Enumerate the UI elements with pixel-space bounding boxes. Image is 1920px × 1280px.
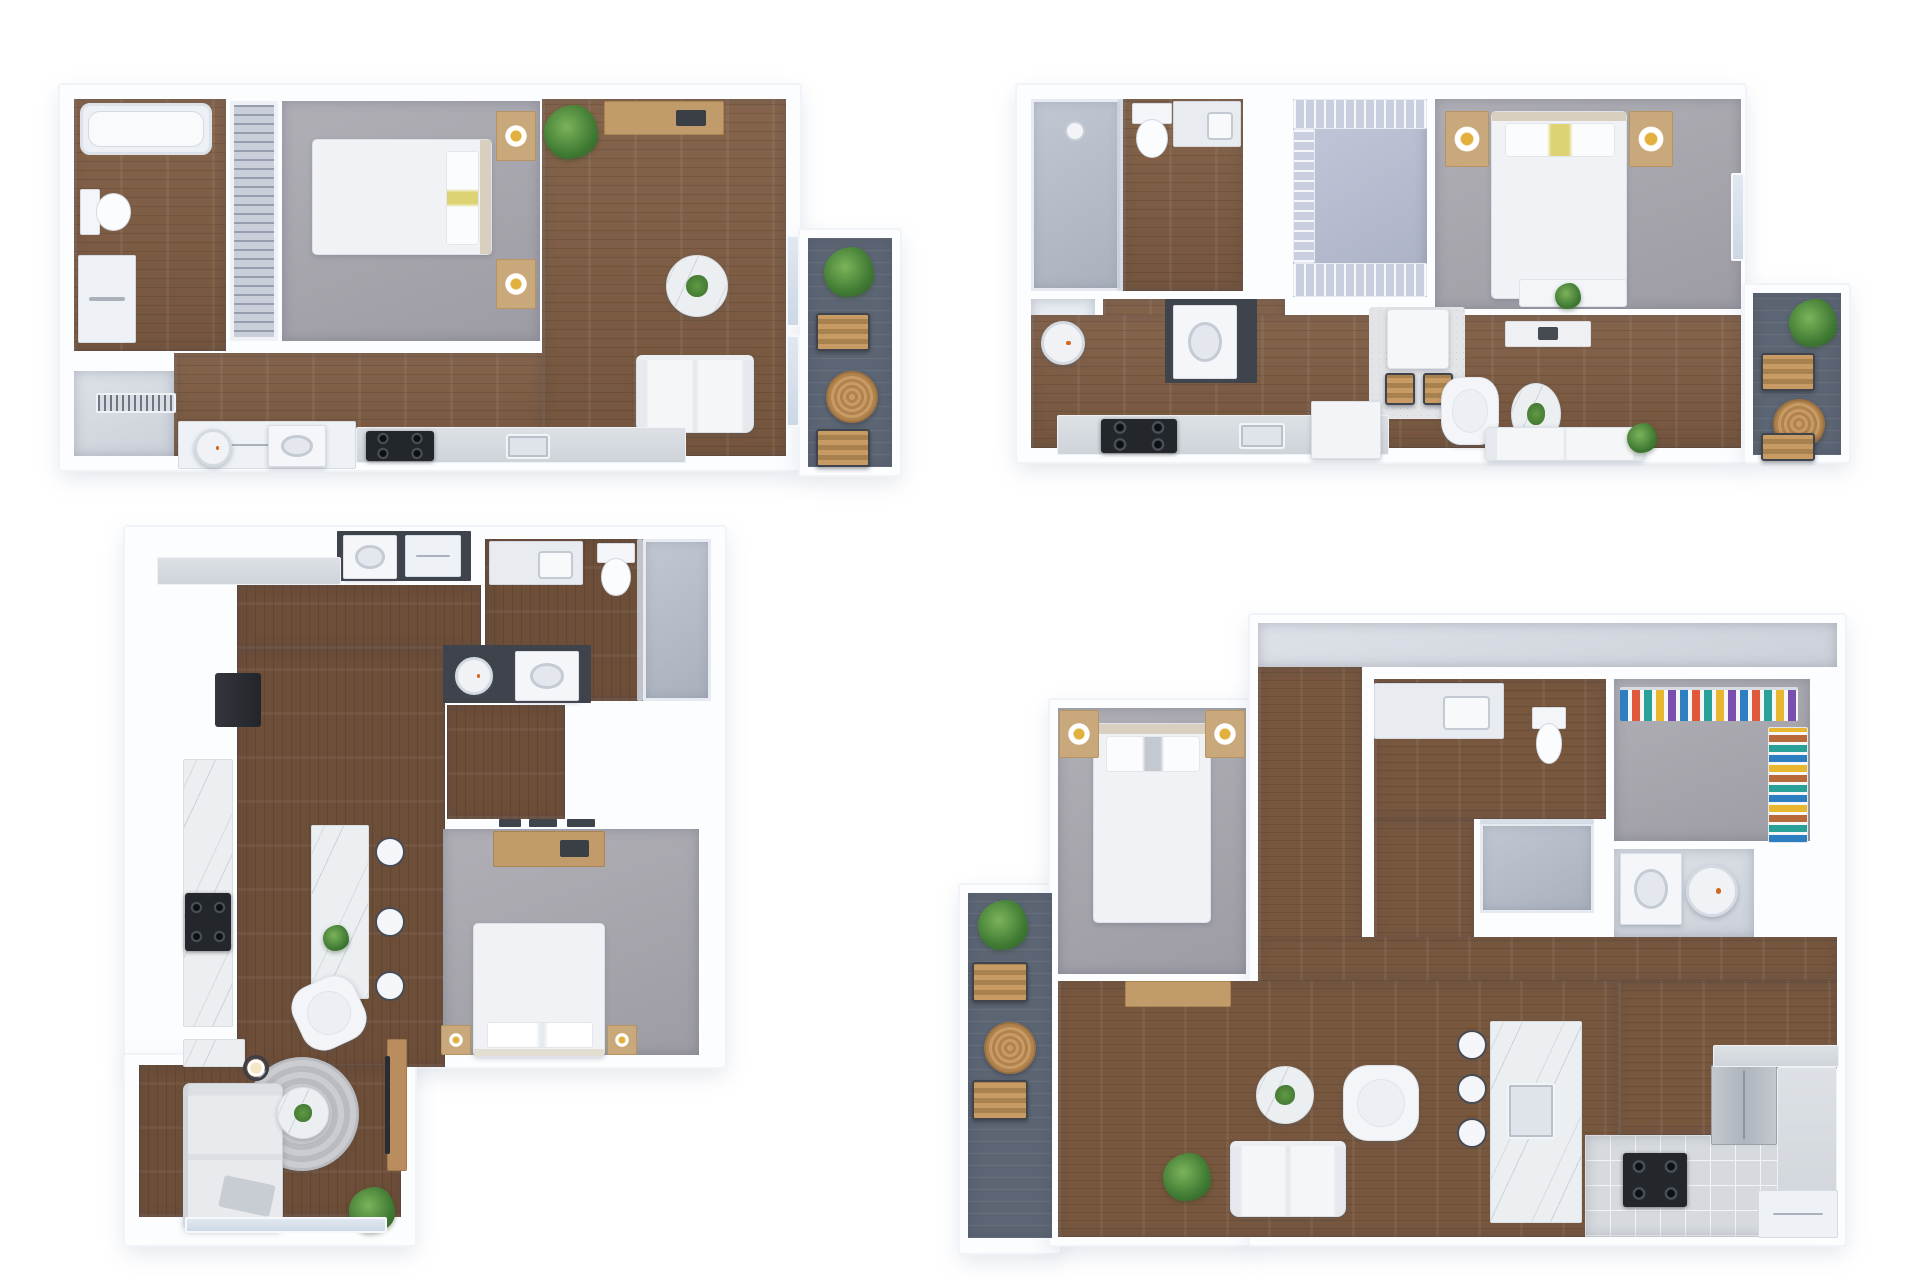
nightstand [441, 1025, 471, 1055]
wall-art [567, 819, 595, 827]
bathroom-vanity [489, 541, 583, 585]
shower-head [1065, 121, 1085, 141]
balcony-table [984, 1022, 1036, 1074]
loveseat-sofa [636, 355, 754, 433]
kitchen-sink [506, 434, 550, 459]
bar-stool [375, 971, 405, 1001]
stove-cooktop [366, 431, 434, 461]
bar-stool [1457, 1030, 1487, 1060]
kitchen-upper-counter [157, 557, 341, 585]
stove-cooktop [185, 893, 231, 951]
bedroom-desk [493, 831, 605, 867]
shower-glass [1480, 819, 1594, 824]
bathroom-vanity [1374, 683, 1504, 739]
bed [1491, 111, 1627, 299]
floor-lamp [243, 1055, 269, 1081]
floor-vent [96, 393, 176, 413]
washer [268, 425, 326, 467]
tv-console [387, 1039, 407, 1171]
balcony-plant [824, 247, 874, 297]
floor-plan-top-left [60, 85, 905, 477]
console-table [183, 1039, 245, 1067]
closet-shelving [1293, 263, 1427, 297]
utility-room-floor [74, 371, 174, 456]
living-room-window [185, 1217, 387, 1233]
dining-table [1387, 309, 1449, 369]
floor-plans-image [0, 0, 1920, 1280]
potted-plant [1163, 1153, 1211, 1201]
balcony-glass-door [786, 235, 800, 327]
closet-clothes-rack [1620, 687, 1798, 721]
balcony-table [826, 371, 878, 423]
dining-chair [1385, 373, 1415, 405]
nightstand [1205, 710, 1245, 758]
nightstand [1629, 111, 1673, 167]
floor-plan-bottom-right [825, 560, 1845, 1270]
closet-shelf [1768, 727, 1808, 843]
balcony-glass-door [786, 335, 800, 427]
stove-cooktop [1101, 419, 1177, 453]
bar-stool [1457, 1074, 1487, 1104]
water-heater [194, 429, 232, 467]
bedroom-window [1731, 173, 1745, 261]
nightstand [496, 259, 536, 309]
coffee-table [666, 255, 728, 317]
balcony-plant [1789, 299, 1837, 347]
balcony-chair [816, 313, 870, 351]
desk-credenza [604, 101, 724, 135]
bar-stool [375, 907, 405, 937]
shower-glass [637, 539, 643, 701]
bed [312, 139, 492, 255]
potted-plant [1627, 423, 1657, 453]
nightstand [607, 1025, 637, 1055]
shower-floor [643, 539, 711, 701]
kitchen-counter [1713, 1045, 1839, 1067]
potted-plant [1555, 283, 1581, 309]
corridor-floor [1258, 937, 1837, 981]
loveseat-sofa [1230, 1141, 1346, 1217]
hallway-floor [447, 705, 565, 819]
balcony-chair [972, 1080, 1028, 1120]
hallway-floor [1258, 667, 1362, 977]
hallway-floor [237, 585, 481, 649]
wall-art [499, 819, 521, 827]
potted-plant [544, 105, 598, 159]
closet-shelving [1293, 99, 1427, 129]
dresser [1125, 981, 1231, 1007]
toilet [1530, 707, 1566, 765]
shower-floor [1480, 823, 1594, 913]
coffee-table [277, 1087, 329, 1139]
top-closet-strip [1258, 623, 1837, 667]
refrigerator [215, 673, 261, 727]
bed [1093, 723, 1211, 923]
floor-plan-bottom-left [125, 527, 725, 1247]
balcony-chair [972, 962, 1028, 1002]
nightstand [496, 111, 536, 161]
desk [1505, 321, 1591, 347]
coffee-table [1256, 1066, 1314, 1124]
bed [473, 923, 605, 1057]
sofa [183, 1083, 283, 1231]
closet-shelving [1293, 129, 1315, 263]
balcony-chair [1761, 433, 1815, 461]
refrigerator [1711, 1065, 1777, 1145]
toilet [1129, 103, 1173, 159]
nightstand [1059, 710, 1099, 758]
sofa [1485, 427, 1645, 461]
kitchen-island [311, 825, 369, 999]
island-plant [323, 925, 349, 951]
stove-cooktop [1623, 1153, 1687, 1207]
bathroom-vanity [78, 255, 136, 343]
bathtub [80, 103, 212, 155]
wall-art [529, 819, 557, 827]
toilet [595, 543, 635, 597]
bar-stool [375, 837, 405, 867]
balcony-plant [978, 900, 1028, 950]
washer [515, 651, 579, 701]
bathroom-floor [1374, 819, 1474, 941]
water-heater [1686, 865, 1738, 917]
kitchen-sink [1239, 423, 1285, 449]
refrigerator [1311, 401, 1381, 459]
storage-cabinet [405, 535, 461, 577]
washer [1173, 305, 1237, 379]
balcony-chair [816, 429, 870, 467]
nightstand [1445, 111, 1489, 167]
toilet [80, 185, 132, 237]
floor-plan-top-right [1017, 85, 1857, 470]
entry-cabinet [1758, 1190, 1838, 1238]
washer [1620, 853, 1682, 925]
bar-stool [1457, 1118, 1487, 1148]
balcony-chair [1761, 353, 1815, 391]
water-heater [455, 657, 493, 695]
armchair [1343, 1065, 1419, 1141]
closet-floor [230, 101, 278, 341]
water-heater [1041, 321, 1085, 365]
island-sink [1507, 1083, 1555, 1139]
bathroom-vanity [1173, 101, 1241, 147]
washer [343, 535, 397, 579]
shower-glass [1117, 99, 1123, 291]
